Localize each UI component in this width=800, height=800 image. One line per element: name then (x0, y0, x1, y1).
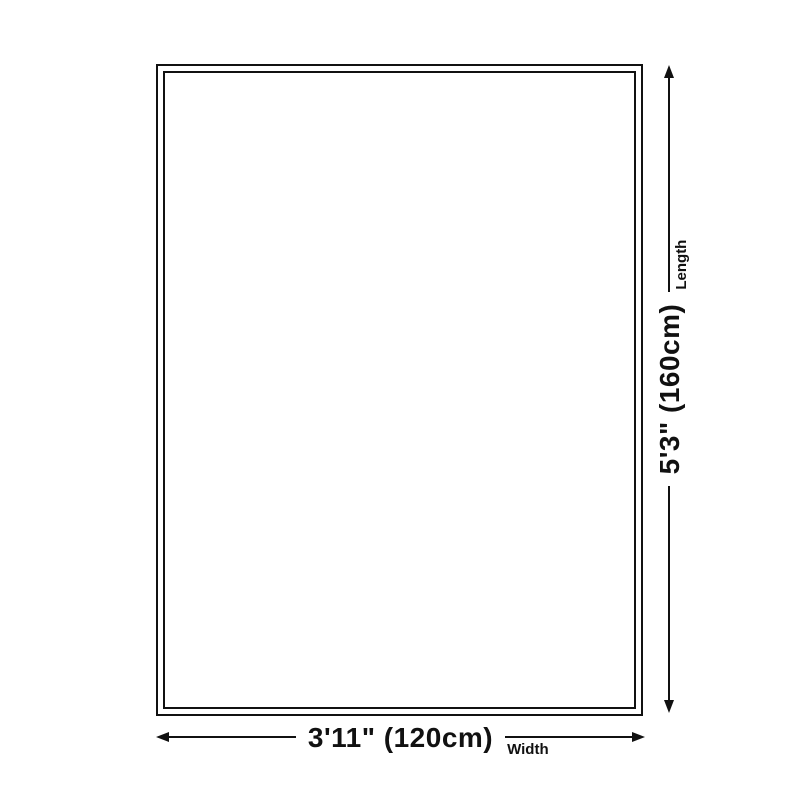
rug-inner-border (163, 71, 636, 709)
length-dimension-line-end: Length (668, 78, 670, 292)
arrow-right-icon (632, 732, 645, 742)
length-dimension-line-start (668, 486, 670, 700)
width-dimension: 3'11" (120cm) Width (156, 717, 645, 757)
rug-outline (156, 64, 643, 716)
width-axis-label: Width (507, 742, 549, 757)
arrow-up-icon (664, 65, 674, 78)
width-value: 3'11" (120cm) (296, 724, 505, 752)
arrow-down-icon (664, 700, 674, 713)
rug-size-diagram: 3'11" (120cm) Width 5'3" (160cm) Length (0, 0, 800, 800)
width-dimension-line-start (169, 736, 296, 738)
arrow-left-icon (156, 732, 169, 742)
length-axis-label: Length (674, 240, 689, 290)
width-dimension-line-end: Width (505, 736, 632, 738)
length-value: 5'3" (160cm) (656, 292, 684, 487)
length-dimension: 5'3" (160cm) Length (649, 65, 689, 713)
